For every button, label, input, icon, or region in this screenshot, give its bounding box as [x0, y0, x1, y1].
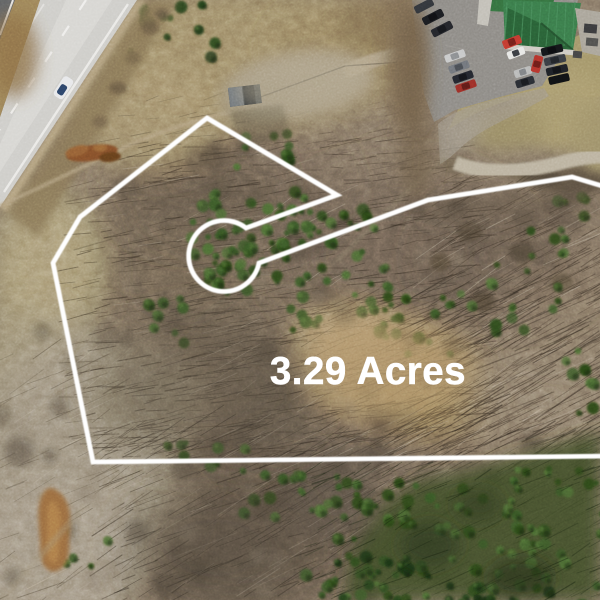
- svg-text:3.29 Acres: 3.29 Acres: [270, 350, 466, 393]
